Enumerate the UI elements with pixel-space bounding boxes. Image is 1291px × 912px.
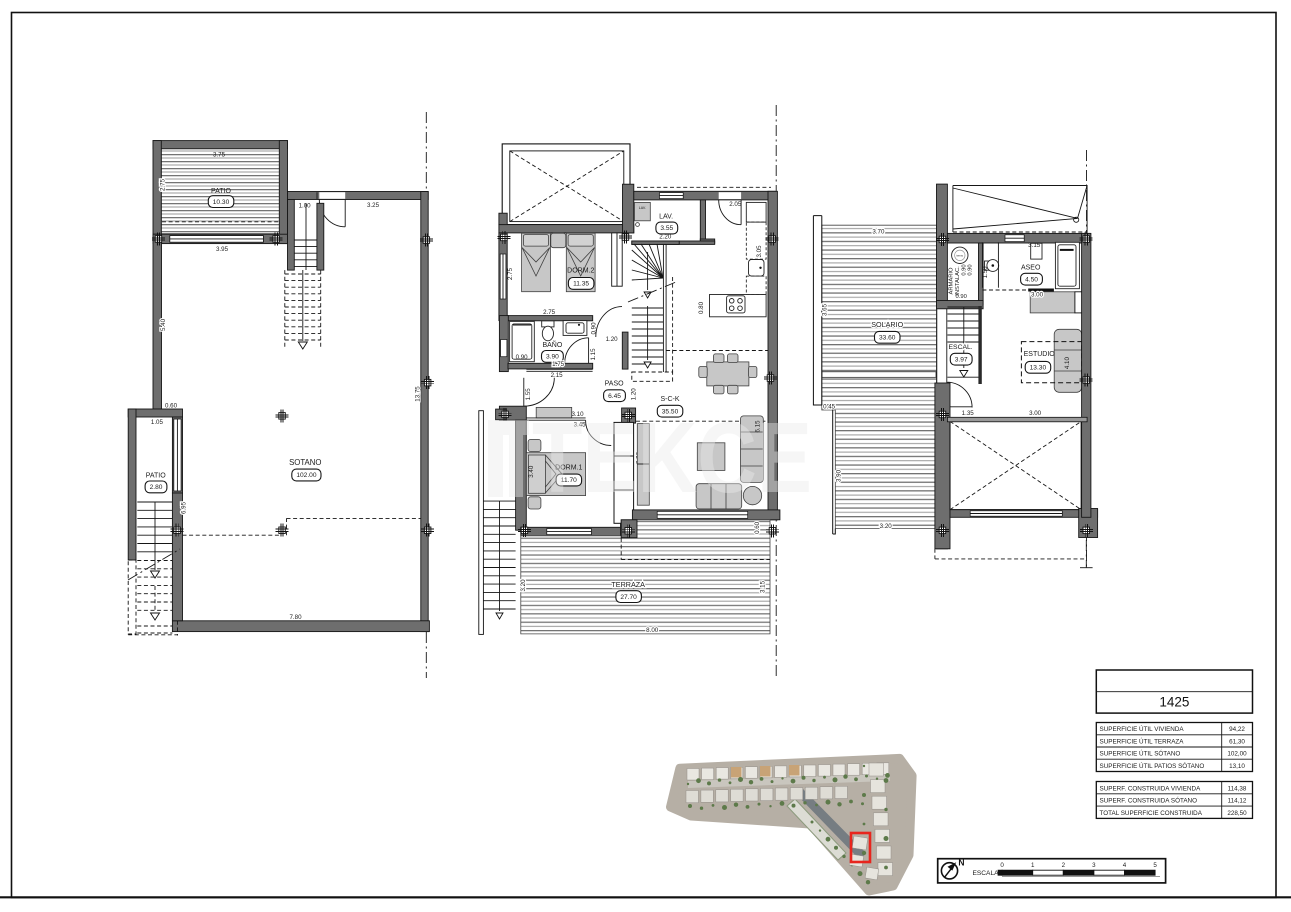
svg-text:PASO: PASO — [605, 380, 624, 387]
svg-text:TERRAZA: TERRAZA — [611, 580, 645, 589]
svg-text:3.90: 3.90 — [835, 469, 842, 482]
svg-text:2: 2 — [1062, 862, 1066, 869]
svg-text:5: 5 — [1153, 862, 1157, 869]
svg-text:SUPERFICIE ÚTIL TERRAZA: SUPERFICIE ÚTIL TERRAZA — [1100, 737, 1185, 746]
svg-text:DORM.2: DORM.2 — [567, 267, 594, 274]
svg-text:3.15: 3.15 — [760, 580, 767, 593]
svg-text:3.97: 3.97 — [955, 356, 968, 363]
svg-text:SOTANO: SOTANO — [289, 458, 321, 467]
svg-text:SOLARIO: SOLARIO — [871, 320, 903, 329]
svg-text:1.75: 1.75 — [552, 361, 565, 368]
svg-text:3: 3 — [1092, 862, 1096, 869]
svg-text:0.60: 0.60 — [165, 403, 178, 410]
svg-text:2.05: 2.05 — [729, 201, 742, 208]
svg-text:3.75: 3.75 — [213, 151, 226, 158]
svg-text:3.15: 3.15 — [1028, 242, 1041, 249]
svg-text:termo: termo — [956, 254, 963, 258]
svg-text:33.60: 33.60 — [879, 335, 896, 342]
svg-text:3.65: 3.65 — [822, 303, 829, 316]
svg-text:5.40: 5.40 — [160, 318, 167, 331]
svg-text:4: 4 — [1123, 862, 1127, 869]
svg-text:0.60: 0.60 — [754, 521, 761, 534]
svg-text:13.75: 13.75 — [415, 386, 422, 402]
svg-text:11.35: 11.35 — [573, 281, 589, 288]
svg-text:61,30: 61,30 — [1229, 739, 1245, 746]
svg-text:SUPERFICIE ÚTIL SÓTANO: SUPERFICIE ÚTIL SÓTANO — [1100, 749, 1181, 758]
svg-text:228,50: 228,50 — [1227, 810, 1247, 817]
svg-text:INSTALAC.: INSTALAC. — [955, 266, 961, 296]
svg-text:1: 1 — [1031, 862, 1035, 869]
svg-text:3.90: 3.90 — [546, 354, 559, 361]
svg-text:102.00: 102.00 — [296, 472, 317, 479]
svg-text:1.50: 1.50 — [982, 266, 989, 279]
svg-text:ESCALA :: ESCALA : — [973, 870, 1002, 877]
svg-text:3.70: 3.70 — [872, 228, 885, 235]
svg-text:0: 0 — [1000, 862, 1004, 869]
svg-text:13.30: 13.30 — [1030, 365, 1047, 372]
svg-text:3.55: 3.55 — [660, 225, 673, 232]
svg-text:3.05: 3.05 — [756, 245, 763, 258]
svg-text:0.90: 0.90 — [961, 264, 967, 275]
svg-text:114,38: 114,38 — [1228, 785, 1247, 792]
svg-text:0.80: 0.80 — [698, 301, 705, 314]
svg-text:3.25: 3.25 — [367, 202, 380, 209]
svg-text:1.35: 1.35 — [962, 410, 975, 417]
svg-text:1.00: 1.00 — [299, 202, 312, 209]
svg-text:27.70: 27.70 — [620, 594, 637, 601]
svg-text:0.45: 0.45 — [823, 403, 836, 410]
svg-text:TEKCE: TEKCE — [532, 402, 812, 514]
svg-text:6.45: 6.45 — [608, 393, 621, 400]
svg-text:1425: 1425 — [1159, 695, 1189, 710]
svg-text:2.15: 2.15 — [551, 372, 564, 379]
svg-text:3.95: 3.95 — [216, 246, 229, 253]
svg-text:7.80: 7.80 — [289, 614, 302, 621]
svg-text:ESTUDIO: ESTUDIO — [1024, 351, 1056, 358]
svg-text:ARMARIO: ARMARIO — [949, 267, 955, 295]
svg-text:10.30: 10.30 — [213, 199, 230, 206]
svg-text:4.50: 4.50 — [1025, 276, 1038, 283]
svg-text:LAV.: LAV. — [639, 206, 646, 210]
svg-text:SUPERFICIE ÚTIL PATIOS SÓTANO: SUPERFICIE ÚTIL PATIOS SÓTANO — [1100, 761, 1205, 770]
svg-text:1.05: 1.05 — [151, 419, 164, 426]
svg-text:3.20: 3.20 — [520, 579, 527, 592]
svg-text:0.90: 0.90 — [956, 294, 967, 300]
svg-text:ASEO: ASEO — [1021, 265, 1041, 272]
svg-text:102,00: 102,00 — [1227, 751, 1247, 758]
svg-text:LAV.: LAV. — [659, 214, 673, 221]
svg-text:0.90: 0.90 — [968, 264, 974, 275]
svg-text:3.00: 3.00 — [1029, 410, 1042, 417]
svg-text:TOTAL SUPERFICIE CONSTRUIDA: TOTAL SUPERFICIE CONSTRUIDA — [1100, 810, 1203, 817]
svg-text:SUPERF. CONSTRUIDA SÓTANO: SUPERF. CONSTRUIDA SÓTANO — [1100, 796, 1198, 805]
svg-text:4.10: 4.10 — [1064, 357, 1071, 370]
svg-text:2.75: 2.75 — [160, 178, 167, 191]
svg-text:2.80: 2.80 — [150, 484, 163, 491]
svg-text:3.00: 3.00 — [1031, 292, 1044, 299]
svg-text:PATIO: PATIO — [146, 473, 167, 480]
svg-text:6.95: 6.95 — [181, 501, 188, 514]
svg-text:ESCAL.: ESCAL. — [949, 344, 973, 351]
svg-text:1.20: 1.20 — [606, 336, 619, 343]
svg-text:114,12: 114,12 — [1228, 798, 1247, 805]
svg-text:3.20: 3.20 — [880, 523, 893, 530]
svg-text:2.75: 2.75 — [507, 267, 514, 280]
svg-text:0.90: 0.90 — [516, 354, 529, 361]
svg-text:94,22: 94,22 — [1229, 726, 1245, 733]
svg-text:2.75: 2.75 — [543, 309, 556, 316]
svg-text:2.20: 2.20 — [659, 233, 672, 240]
svg-text:SUPERFICIE ÚTIL VIVIENDA: SUPERFICIE ÚTIL VIVIENDA — [1100, 724, 1185, 733]
svg-text:8.00: 8.00 — [646, 627, 659, 634]
svg-text:SUPERF. CONSTRUIDA VIVIENDA: SUPERF. CONSTRUIDA VIVIENDA — [1100, 785, 1202, 792]
svg-text:1.15: 1.15 — [590, 348, 597, 361]
svg-text:1.55: 1.55 — [525, 388, 532, 401]
svg-text:1.20: 1.20 — [630, 388, 637, 401]
svg-text:N: N — [958, 858, 964, 868]
svg-text:13,10: 13,10 — [1229, 763, 1245, 770]
svg-text:BAÑO: BAÑO — [542, 340, 562, 349]
svg-text:PATIO: PATIO — [211, 188, 232, 195]
